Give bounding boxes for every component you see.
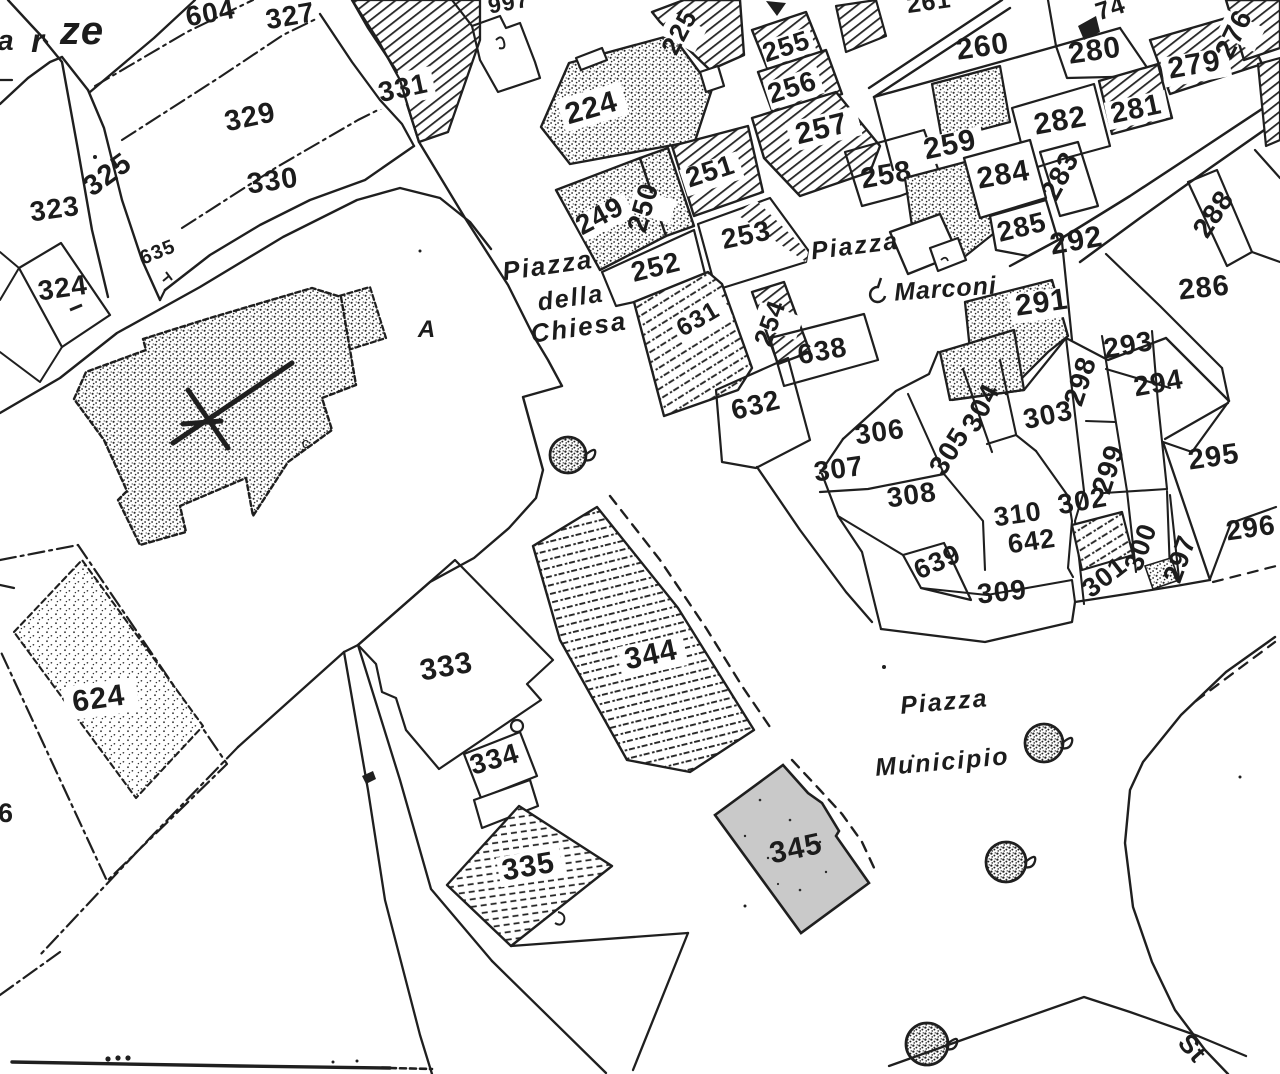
svg-text:r: r <box>31 22 46 59</box>
svg-text:a: a <box>0 25 15 57</box>
svg-text:ze: ze <box>59 9 104 53</box>
svg-text:c: c <box>302 435 311 452</box>
svg-text:286: 286 <box>1177 269 1231 306</box>
svg-text:309: 309 <box>976 574 1029 610</box>
svg-text:A: A <box>417 316 436 343</box>
svg-text:6: 6 <box>0 798 14 828</box>
